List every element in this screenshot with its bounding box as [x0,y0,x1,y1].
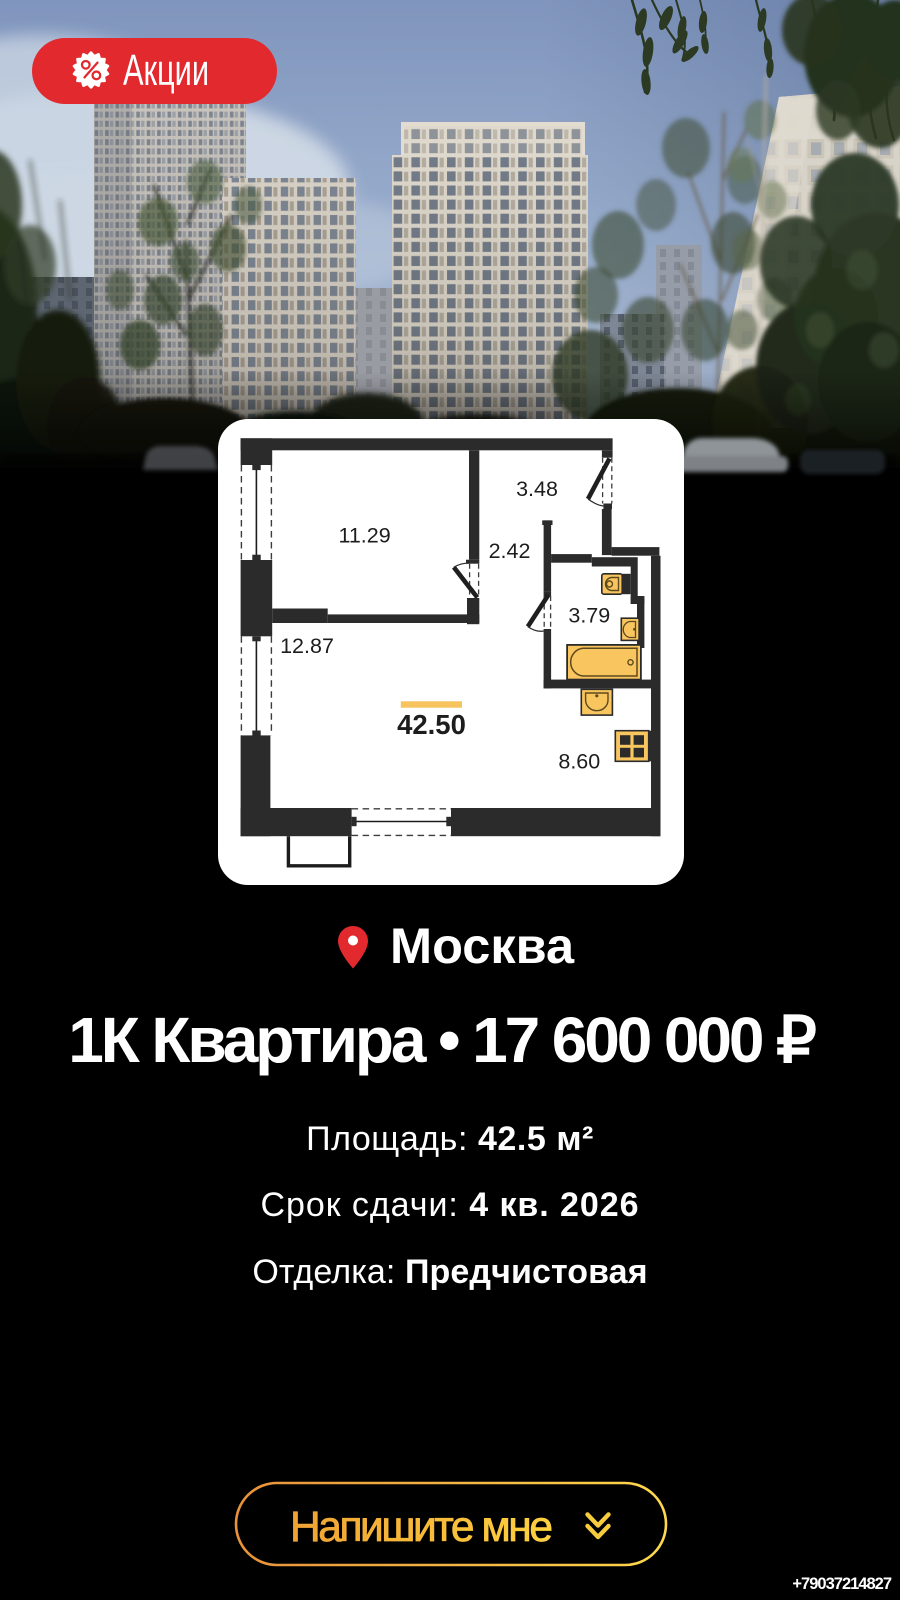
svg-text:2.42: 2.42 [489,539,531,563]
svg-text:12.87: 12.87 [280,634,334,658]
svg-text:42.50: 42.50 [397,709,466,740]
svg-text:8.60: 8.60 [558,750,600,774]
svg-text:3.48: 3.48 [516,477,558,501]
svg-text:3.79: 3.79 [568,604,610,628]
svg-text:11.29: 11.29 [338,524,390,548]
svg-text:Напишите мне: Напишите мне [290,1504,553,1551]
